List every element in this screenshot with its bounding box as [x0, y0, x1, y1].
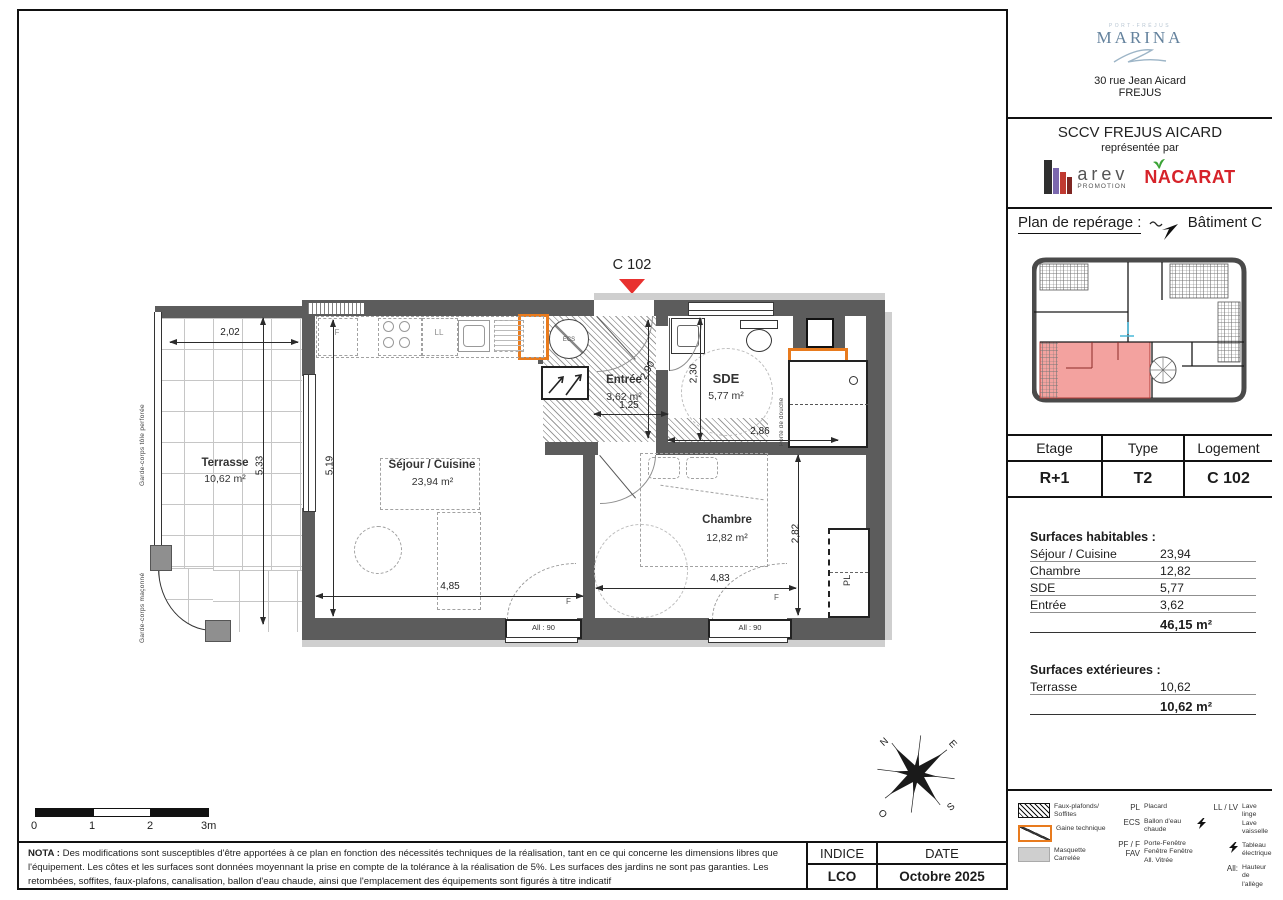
legend-faux-plafonds: Faux-plafonds/ Soffites: [1018, 803, 1108, 820]
column: [806, 318, 834, 348]
surface-value: 3,62: [1160, 598, 1184, 612]
title-block-panel: PORT-FRÉJUS MARINA 30 rue Jean Aicard FR…: [1006, 9, 1272, 890]
masquette-right: [885, 312, 892, 640]
guardrail-label-1: Garde-corps tôle perforée: [139, 368, 146, 486]
lightning-icon: [1229, 842, 1238, 853]
electrical-panel: [541, 366, 589, 400]
arev-sub: PROMOTION: [1077, 183, 1128, 190]
surface-label: Entrée: [1030, 598, 1160, 612]
gaine-swatch-icon: [1018, 825, 1052, 842]
wall-hall-chambre-a: [545, 442, 598, 455]
compass-rose: N E S O: [862, 726, 970, 822]
reperage-section: Plan de repérage : Bâtiment C: [1008, 209, 1272, 436]
chambre-turning-circle: [594, 524, 688, 618]
guardrail-label-2: Garde-corps maçonné: [139, 543, 146, 643]
bottom-wall-a: [302, 618, 506, 640]
unit-type-value: T2: [1103, 462, 1185, 496]
surface-row: Entrée3,62: [1030, 596, 1256, 613]
dim-sejour-width: [316, 596, 583, 597]
surface-label: Chambre: [1030, 564, 1160, 578]
unit-header-type: Type: [1103, 436, 1185, 462]
ecs-label: ECS: [563, 337, 575, 343]
burner-2: [399, 321, 410, 332]
legend-section: Faux-plafonds/ Soffites Gaine technique …: [1008, 791, 1272, 894]
bottom-wall-b: [577, 618, 709, 640]
terrasse-top-wall: [155, 306, 302, 318]
dim-chambre-height-label: 2,82: [791, 514, 802, 554]
scalebar-seg-2: [93, 808, 151, 817]
nota-prefix: NOTA :: [28, 848, 60, 859]
sejour-window-f: F: [566, 597, 571, 606]
wall-entree-sde-a: [656, 316, 668, 326]
toilet-tank: [740, 320, 778, 329]
entrance-opening: [594, 300, 654, 316]
scalebar-0: 0: [31, 820, 37, 832]
washer-slot: [422, 318, 458, 356]
revision-indice-value: LCO: [808, 865, 878, 888]
sde-area: 5,77 m²: [692, 390, 760, 402]
nota-box: NOTA : Des modifications sont susceptibl…: [17, 841, 808, 890]
arev-logo-icon: [1044, 160, 1072, 194]
wall-entree-sde-b: [656, 370, 668, 442]
unit-header-logement: Logement: [1185, 436, 1272, 462]
dim-entree-width-label: 1,25: [604, 400, 654, 411]
arev-logo: arev PROMOTION: [1044, 160, 1128, 194]
dim-sde-height: [700, 318, 701, 440]
dim-terrasse-width: [170, 342, 298, 343]
revision-header-date: DATE: [878, 843, 1006, 865]
surface-label: Séjour / Cuisine: [1030, 547, 1160, 561]
revision-date-value: Octobre 2025: [878, 865, 1006, 888]
washer-label: LL: [422, 328, 456, 337]
sejour-area: 23,94 m²: [395, 476, 470, 488]
dim-chambre-width-label: 4,83: [695, 573, 745, 584]
sde-name: SDE: [700, 371, 752, 386]
left-wall-upper: [302, 316, 315, 376]
sde-door-leaf: [669, 318, 670, 371]
shower-door-line: [790, 404, 868, 405]
sccv-subtitle: représentée par: [1008, 142, 1272, 154]
dim-sde-width: [668, 440, 838, 441]
logo-section: PORT-FRÉJUS MARINA 30 rue Jean Aicard FR…: [1008, 9, 1272, 119]
nacarat-logo: NACARAT: [1144, 167, 1235, 188]
surfaces-exterieures-total: 10,62 m²: [1160, 699, 1212, 714]
legend-masquette: Masquette Carrelée: [1018, 847, 1108, 864]
legend-allege: All:Hauteur de l'allège: [1206, 864, 1271, 889]
chambre-window-sill: [708, 637, 788, 643]
terrasse-post-1: [150, 545, 172, 571]
kitchen-sink-bowl: [463, 325, 485, 347]
terrace-door-window: [303, 374, 316, 512]
surfaces-habitables-total: 46,15 m²: [1160, 617, 1212, 632]
dim-sde-height-label: 2,30: [689, 356, 700, 392]
chambre-window-f: F: [774, 593, 779, 602]
sde-top-window: [688, 302, 774, 316]
dim-chambre-width: [596, 588, 796, 589]
surfaces-section: Surfaces habitables : Séjour / Cuisine23…: [1008, 498, 1272, 791]
scalebar-seg-1: [35, 808, 93, 817]
address-line-1: 30 rue Jean Aicard: [1008, 75, 1272, 87]
revision-table: INDICE DATE LCO Octobre 2025: [806, 841, 1008, 890]
wall-sejour-chambre: [583, 452, 595, 618]
surface-label: SDE: [1030, 581, 1160, 595]
coffee-table: [354, 526, 402, 574]
scalebar-2: 2: [147, 820, 153, 832]
surface-row: SDE5,77: [1030, 579, 1256, 596]
surface-label: Terrasse: [1030, 680, 1160, 694]
surface-row: Chambre12,82: [1030, 562, 1256, 579]
hatch-swatch-icon: [1018, 803, 1050, 818]
dim-sde-width-label: 2,86: [735, 426, 785, 437]
water-heater-ecs: ECS: [549, 319, 589, 359]
reperage-title: Plan de repérage :: [1018, 214, 1141, 234]
pillow-2: [686, 457, 718, 479]
dim-entree-width: [594, 414, 668, 415]
closet-pl-label: PL: [842, 562, 852, 586]
shower-drain: [849, 376, 858, 385]
developer-section: SCCV FREJUS AICARD représentée par arev …: [1008, 119, 1272, 209]
surface-value: 5,77: [1160, 581, 1184, 595]
address-line-2: FREJUS: [1008, 87, 1272, 99]
dim-sejour-height-label: 5,19: [325, 446, 336, 486]
nacarat-name: NACARAT: [1144, 167, 1235, 187]
lightning-icon: [1197, 818, 1206, 829]
shower: [788, 360, 868, 448]
scalebar-1: 1: [89, 820, 95, 832]
terrasse-guardrail: [154, 312, 162, 570]
legend-tableau: Tableau électrique: [1206, 842, 1271, 859]
surface-value: 23,94: [1160, 547, 1191, 561]
dim-sejour-width-label: 4,85: [425, 581, 475, 592]
chambre-window-allege: All : 90: [708, 619, 792, 639]
compass-e: E: [946, 738, 959, 751]
surface-row: Terrasse10,62: [1030, 678, 1256, 695]
electrical-arrow-icon: [544, 369, 586, 397]
nota-body: Des modifications sont susceptibles d'êt…: [28, 848, 778, 887]
unit-logement-value: C 102: [1185, 462, 1272, 496]
unit-header-etage: Etage: [1008, 436, 1103, 462]
surfaces-habitables-title: Surfaces habitables :: [1030, 530, 1256, 544]
legend-pf-f-fav: PF / F FAVPorte-Fenêtre Fenêtre Fenêtre …: [1108, 840, 1206, 865]
dim-terrasse-width-label: 2,02: [205, 327, 255, 338]
chambre-area: 12,82 m²: [682, 532, 772, 544]
north-arrow-icon: [1148, 216, 1182, 242]
unit-marker-label: C 102: [598, 257, 666, 273]
masquette-bottom: [302, 640, 885, 647]
scalebar-3: 3m: [201, 820, 216, 832]
kitchen-sink: [458, 320, 490, 352]
unit-table-section: Etage Type Logement R+1 T2 C 102: [1008, 436, 1272, 498]
burner-1: [383, 321, 394, 332]
left-wall-lower: [302, 508, 315, 632]
legend-ll-lv: LL / LVLave linge Lave vaisselle: [1206, 803, 1271, 837]
sejour-window-allege: All : 90: [505, 619, 582, 639]
legend-gaine: Gaine technique: [1018, 825, 1108, 842]
terrasse-post-2: [205, 620, 231, 642]
sccv-title: SCCV FREJUS AICARD: [1008, 124, 1272, 141]
plan-sheet: { "branding": { "marina_top": "PORT-FRÉJ…: [0, 0, 1283, 900]
masquette-swatch-icon: [1018, 847, 1050, 862]
legend-ecs: ECSBallon d'eau chaude: [1108, 818, 1206, 835]
sejour-window-sill: [505, 637, 578, 643]
key-plan: [1032, 256, 1248, 404]
reperage-batiment: Bâtiment C: [1188, 214, 1262, 231]
burner-4: [399, 337, 410, 348]
vent-grille: [308, 303, 364, 314]
revision-header-indice: INDICE: [808, 843, 878, 865]
fridge-label: F: [318, 328, 356, 337]
compass-o: O: [876, 808, 889, 821]
terrasse-floor: [155, 318, 302, 570]
toilet-bowl: [746, 329, 772, 352]
dim-terrasse-height-label: 5,33: [255, 446, 266, 486]
compass-s: S: [945, 801, 957, 814]
sejour-name: Séjour / Cuisine: [378, 459, 486, 471]
surface-row: Séjour / Cuisine23,94: [1030, 545, 1256, 562]
fridge: [318, 318, 358, 356]
legend-placard: PLPlacard: [1108, 803, 1206, 813]
arev-name: arev: [1077, 165, 1128, 183]
marina-sail-icon: [1108, 46, 1172, 66]
surfaces-exterieures-title: Surfaces extérieures :: [1030, 663, 1256, 677]
nacarat-leaf-icon: [1152, 158, 1166, 170]
dish-drainer: [494, 320, 524, 352]
unit-marker-triangle-icon: [619, 279, 645, 294]
scalebar-seg-3: [151, 808, 209, 817]
surface-value: 10,62: [1160, 680, 1191, 694]
unit-etage-value: R+1: [1008, 462, 1103, 496]
compass-n: N: [878, 736, 891, 749]
burner-3: [383, 337, 394, 348]
surface-value: 12,82: [1160, 564, 1191, 578]
chambre-name: Chambre: [682, 514, 772, 526]
